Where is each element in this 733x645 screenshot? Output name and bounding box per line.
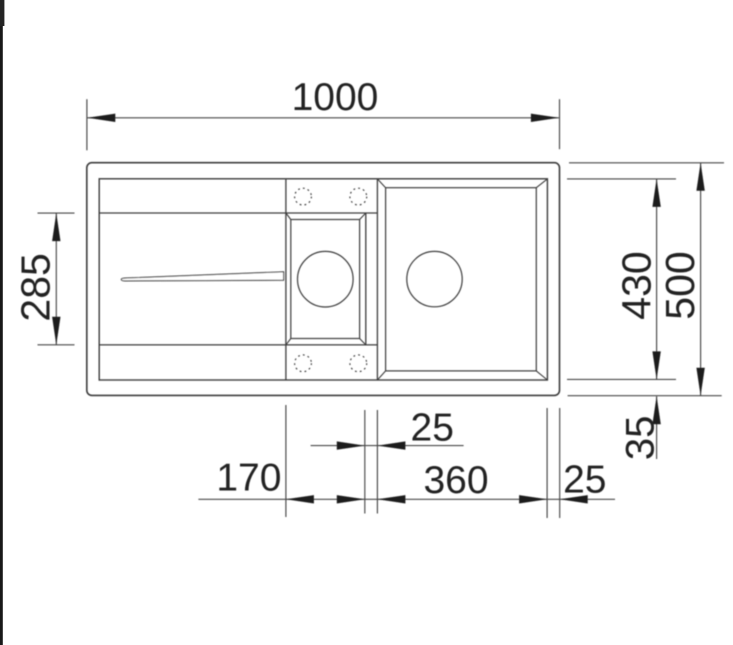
- svg-text:500: 500: [657, 251, 703, 319]
- svg-text:35: 35: [618, 416, 662, 461]
- svg-text:360: 360: [423, 459, 488, 502]
- svg-text:1000: 1000: [292, 76, 379, 119]
- svg-text:430: 430: [613, 251, 659, 319]
- svg-text:285: 285: [13, 253, 59, 321]
- svg-text:25: 25: [563, 458, 606, 501]
- svg-text:25: 25: [411, 407, 454, 450]
- svg-text:170: 170: [216, 456, 281, 499]
